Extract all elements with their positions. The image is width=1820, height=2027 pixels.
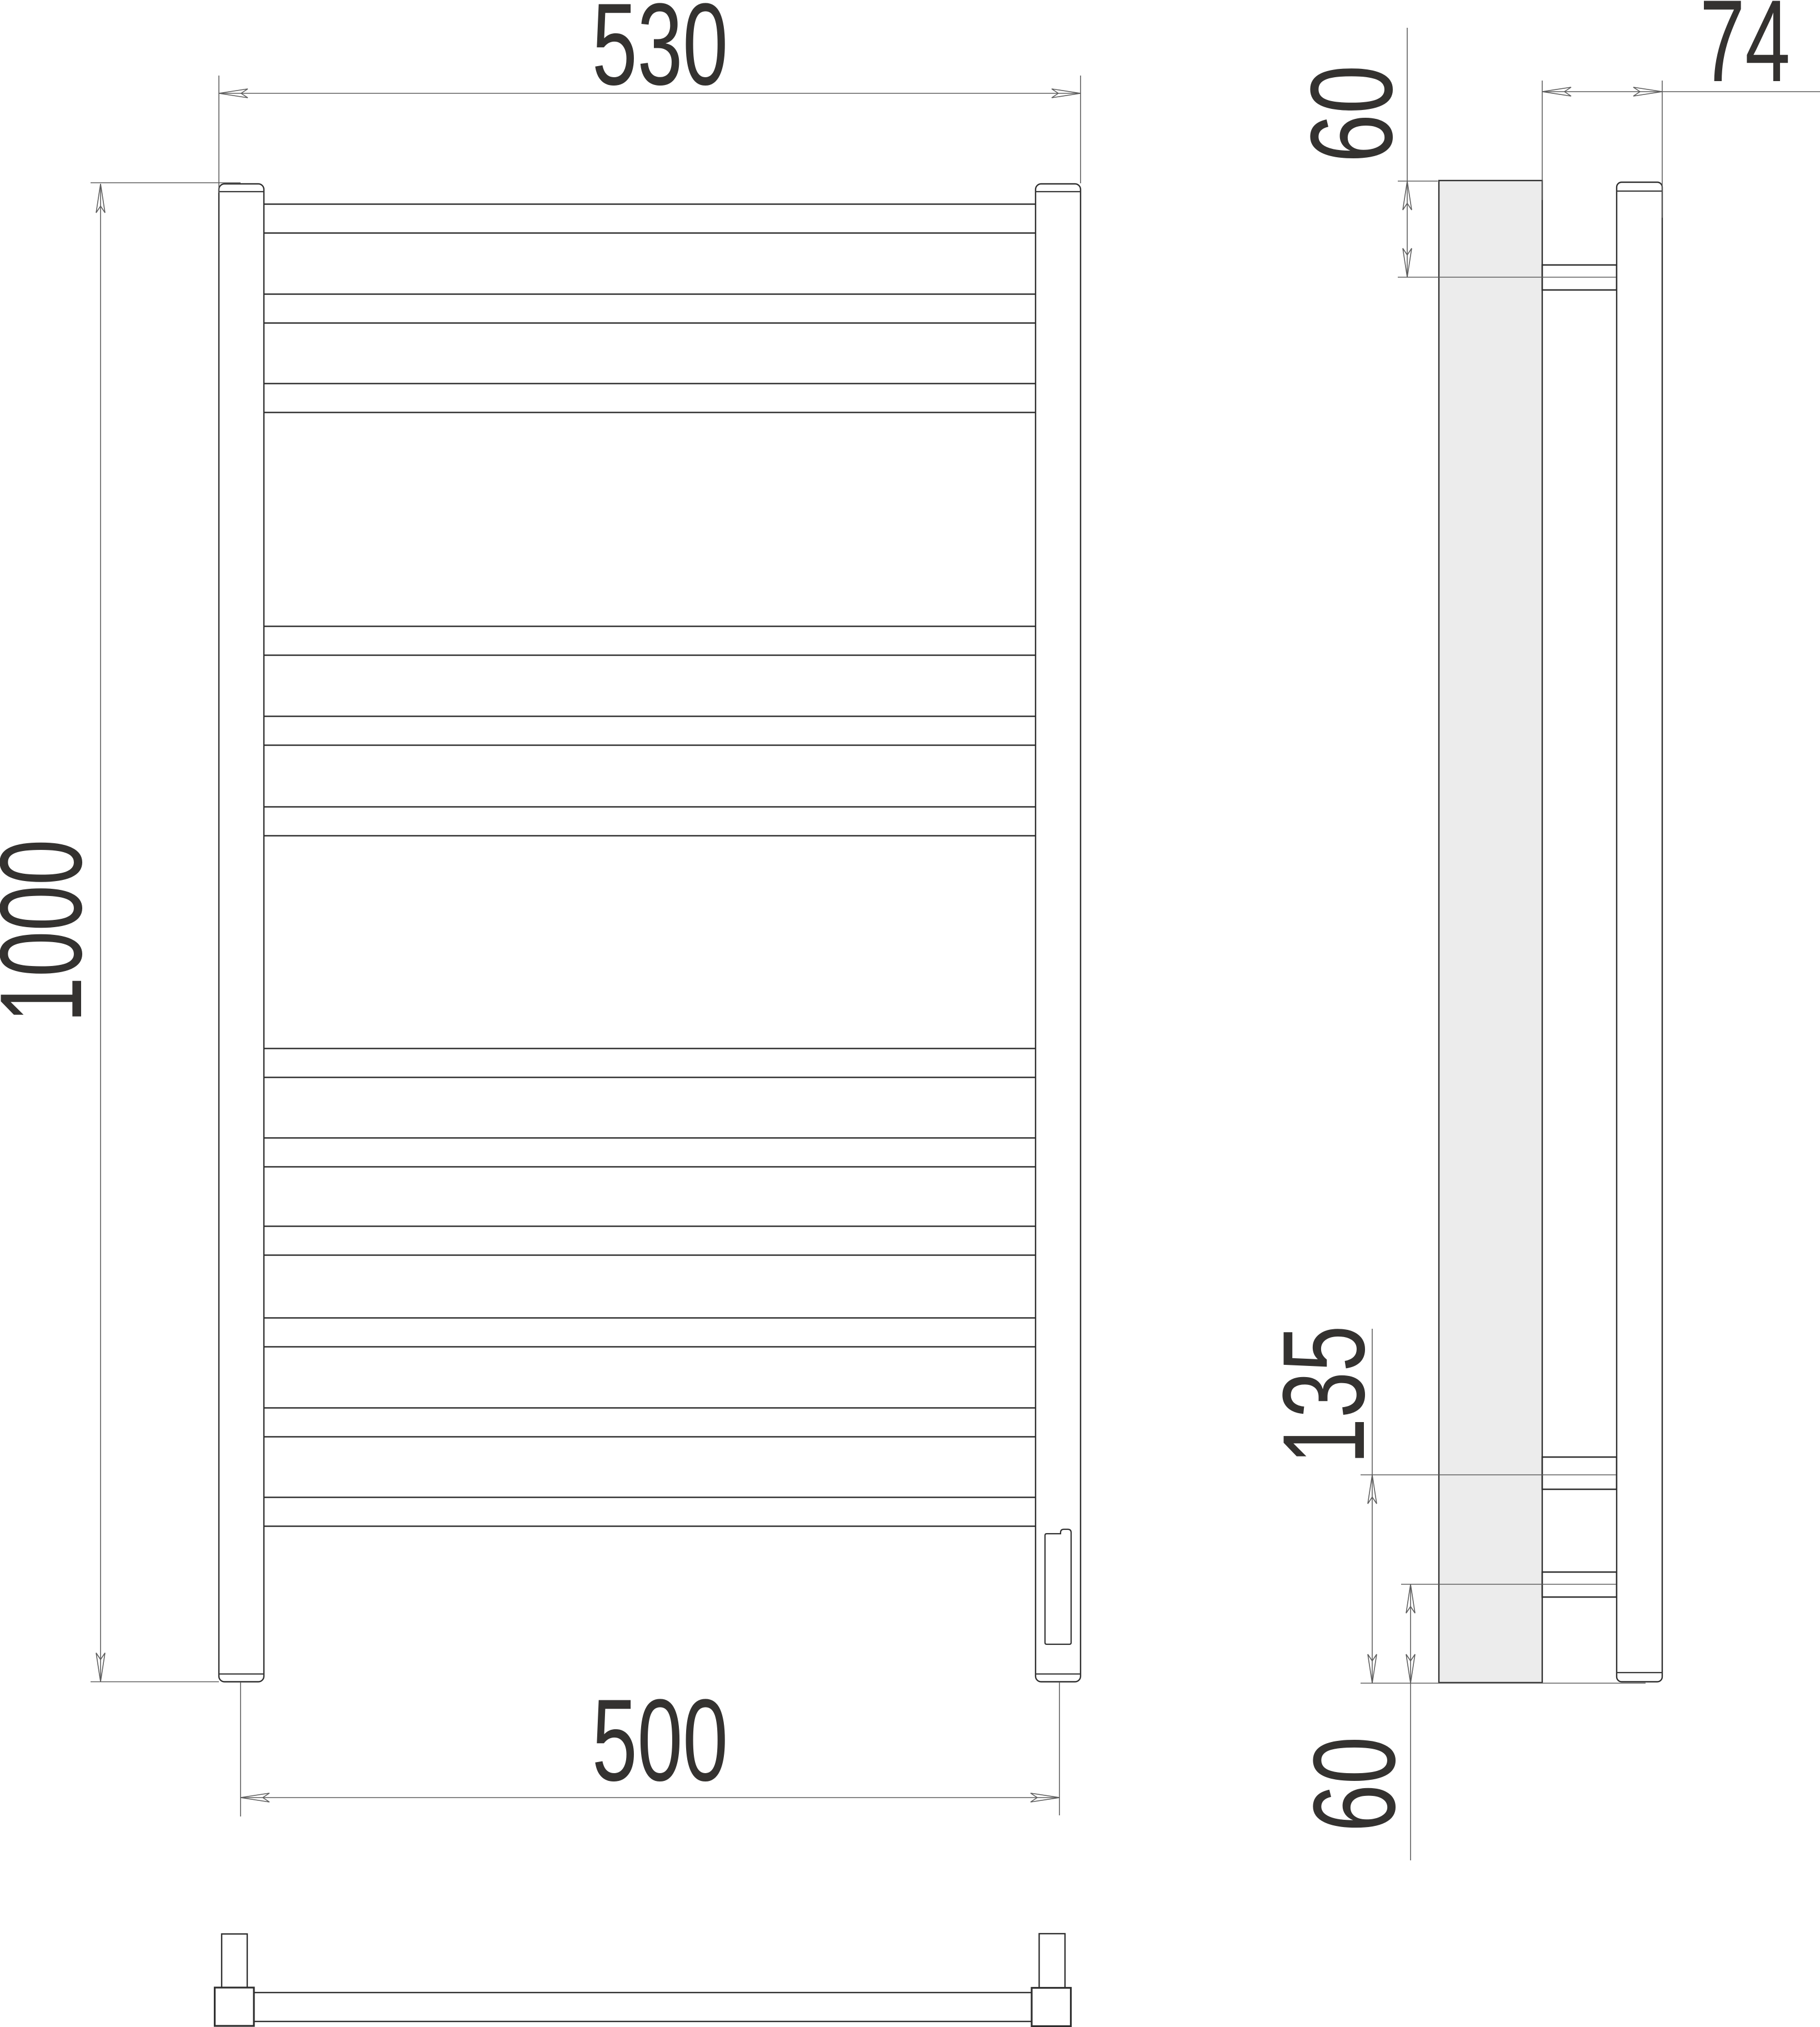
svg-text:500: 500 xyxy=(592,1675,728,1805)
svg-text:74: 74 xyxy=(1700,0,1791,106)
svg-text:1000: 1000 xyxy=(0,839,106,1023)
svg-text:135: 135 xyxy=(1258,1325,1389,1464)
svg-text:60: 60 xyxy=(1286,65,1417,163)
svg-text:60: 60 xyxy=(1289,1736,1419,1832)
